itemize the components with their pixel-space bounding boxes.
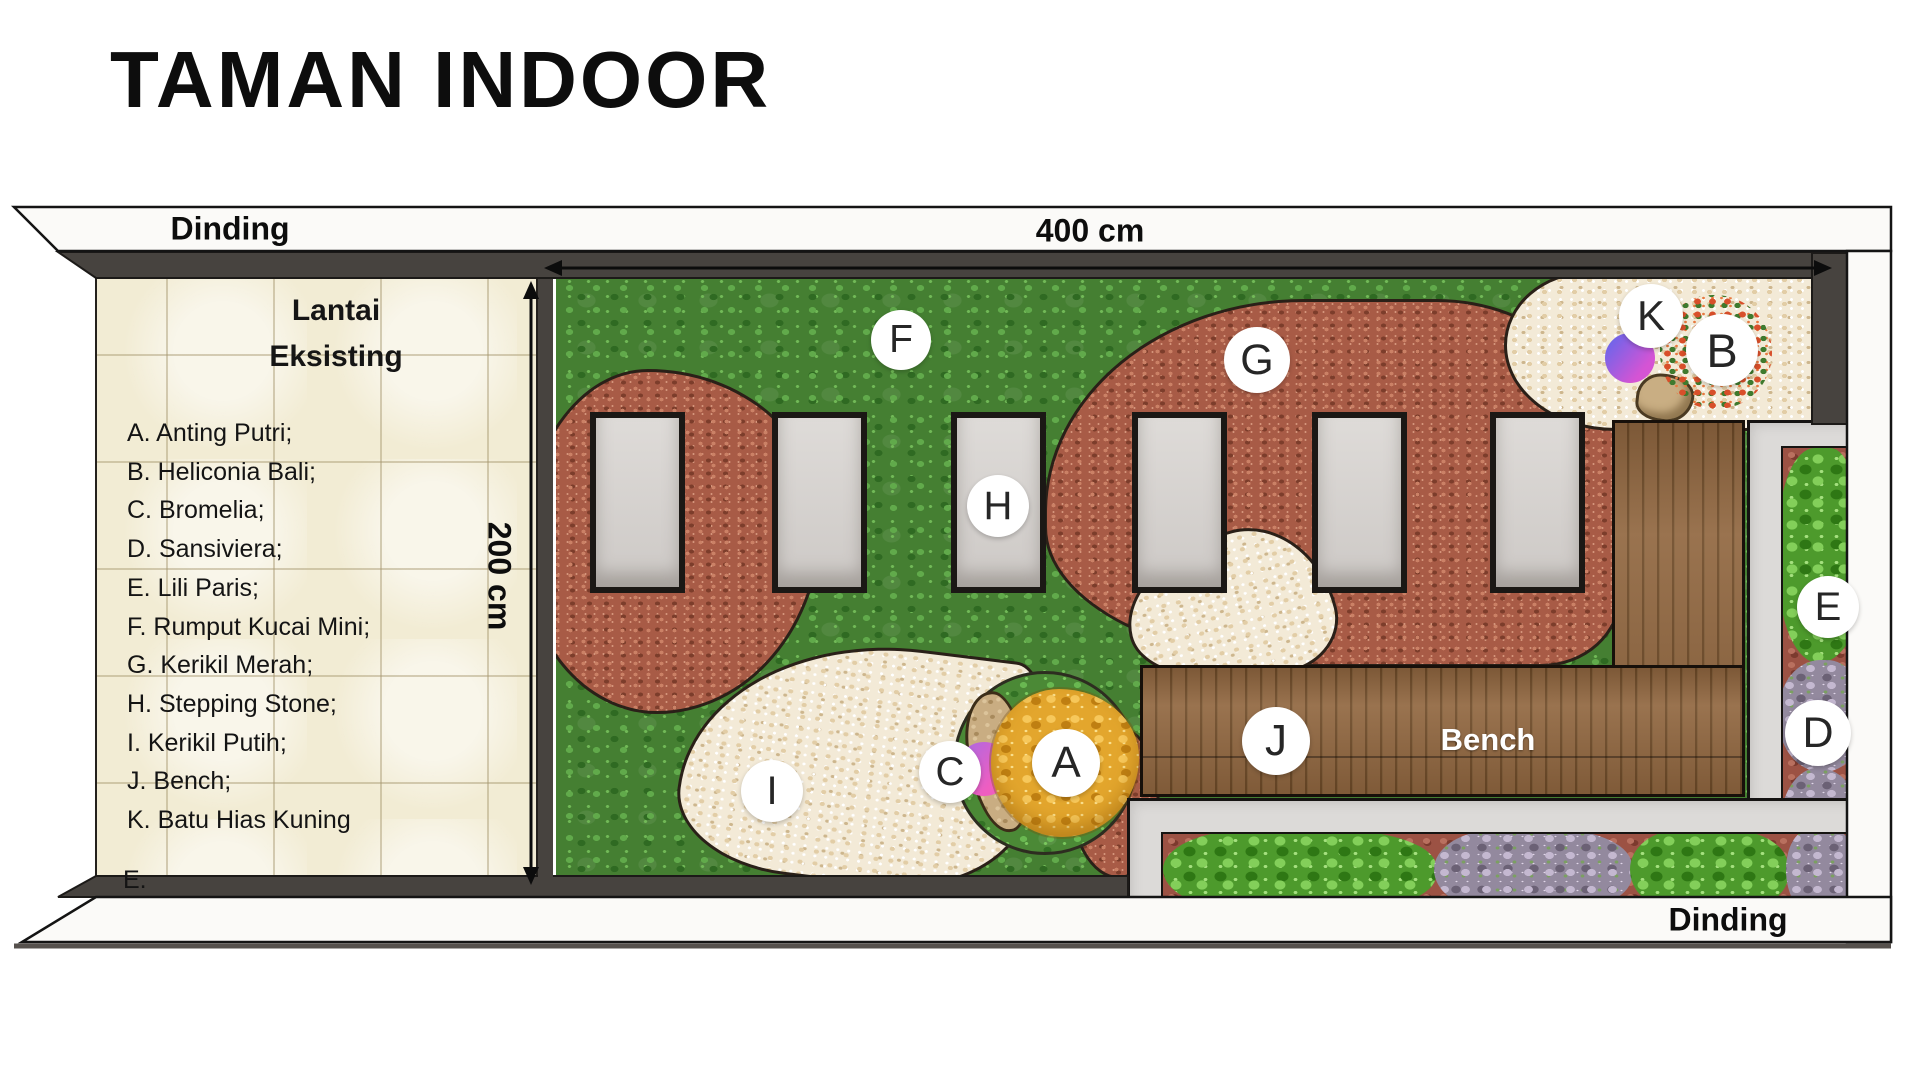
right-inner-wall-corner: [1812, 253, 1849, 424]
stepping-stone-6: [1490, 412, 1585, 593]
green-bush-row: [1630, 832, 1788, 908]
top-outer-wall: [14, 207, 1891, 251]
heliconia-bali-flower-ring: [1660, 295, 1772, 409]
green-bush-row: [1163, 832, 1436, 908]
top-inner-wall: [58, 252, 1849, 278]
lili-paris-bush: [1781, 448, 1860, 663]
stepping-stone-2: [772, 412, 867, 593]
plant-legend: A. Anting Putri; B. Heliconia Bali; C. B…: [127, 414, 370, 840]
garden-left-border: [538, 277, 553, 897]
dimension-label-400cm: 400 cm: [1036, 213, 1145, 250]
existing-floor-heading: Lantai Eksisting: [269, 288, 402, 380]
garden-bed: [556, 277, 1817, 877]
wall-label-top: Dinding: [170, 211, 289, 248]
wall-label-bottom: Dinding: [1668, 902, 1787, 939]
dimension-label-200cm: 200 cm: [481, 522, 518, 631]
stepping-stone-3: [951, 412, 1046, 593]
bottom-planter: [1127, 798, 1862, 912]
bottom-planter-bed: [1161, 832, 1858, 908]
purple-plant-symbol: [1605, 333, 1655, 383]
garden-plan-page: TAMAN INDOOR: [0, 0, 1920, 1080]
lavender-bush-row: [1434, 832, 1632, 908]
lavender-bush-row: [1786, 832, 1858, 908]
page-title: TAMAN INDOOR: [110, 40, 771, 120]
bench-label: Bench: [1441, 722, 1536, 758]
lavender-bush: [1781, 660, 1860, 772]
stepping-stone-1: [590, 412, 685, 593]
stepping-stone-4: [1132, 412, 1227, 593]
stepping-stone-5: [1312, 412, 1407, 593]
cutoff-text: E.: [123, 866, 147, 895]
